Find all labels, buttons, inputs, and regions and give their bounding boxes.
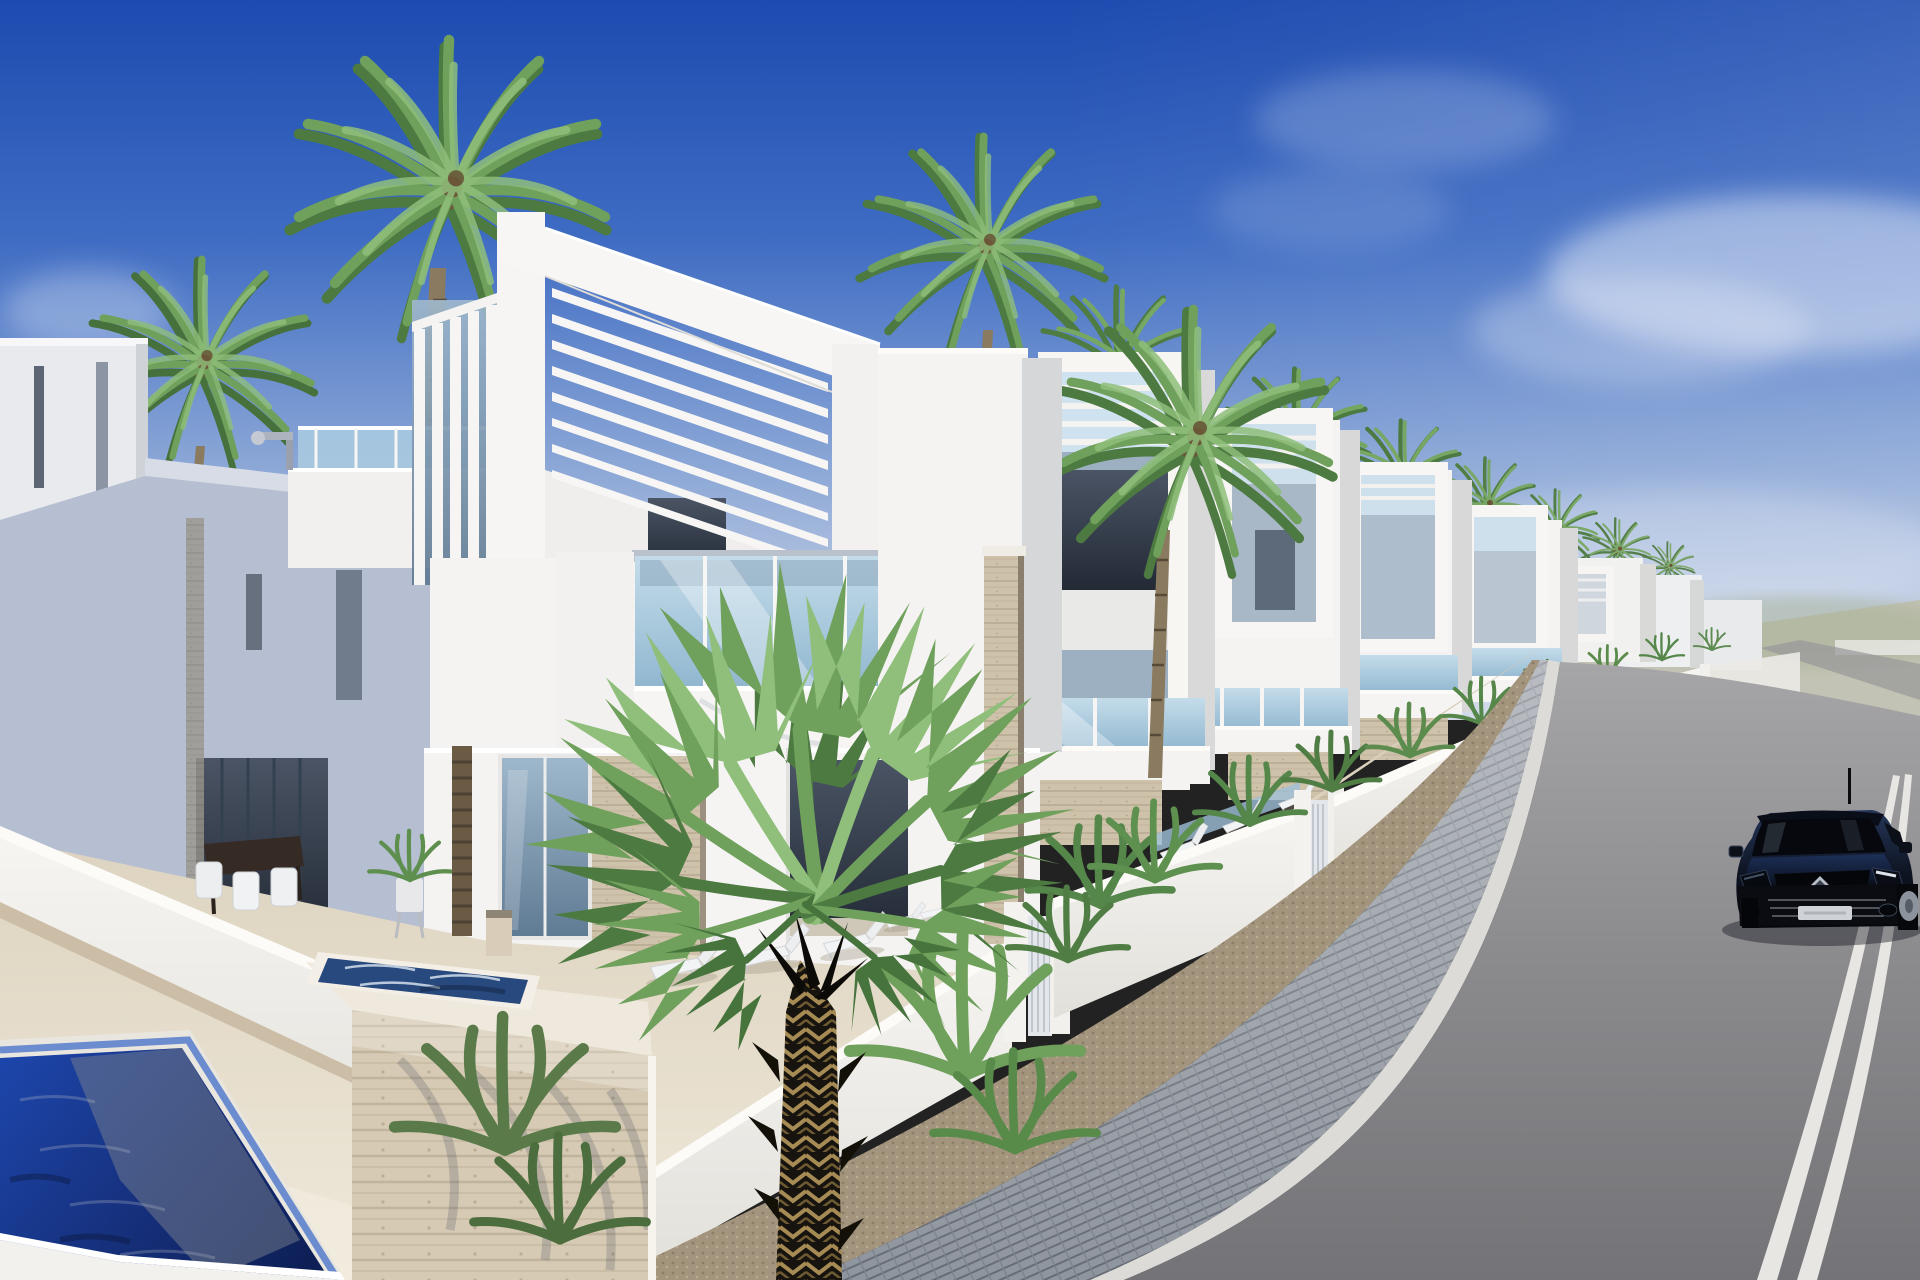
outdoor-dining-set: [196, 836, 304, 914]
cloud-wisp-mid: [1210, 170, 1450, 250]
dining-chair: [233, 872, 259, 910]
cloud-right-tail: [1470, 275, 1810, 385]
window-slit: [246, 574, 262, 650]
dining-chair: [271, 868, 297, 906]
fog-light-right: [1879, 904, 1897, 916]
louver-fin-block: [412, 292, 504, 585]
render-canvas: 3D architectural render of a street of n…: [0, 0, 1920, 1280]
lamp-head: [251, 431, 265, 445]
car-antenna-icon: [1848, 768, 1851, 804]
architectural-render: 3D architectural render of a street of n…: [0, 0, 1920, 1280]
doorway: [1255, 530, 1295, 610]
dining-chair: [196, 862, 222, 898]
side-mirror-left: [1729, 846, 1743, 857]
wheel-front-left: [1742, 898, 1758, 928]
right-tower: [878, 348, 1062, 752]
cloud-wisp-upper: [1255, 70, 1555, 170]
terrace-palm-trunk: [452, 746, 472, 936]
window-slit: [34, 366, 44, 488]
window: [336, 570, 362, 700]
